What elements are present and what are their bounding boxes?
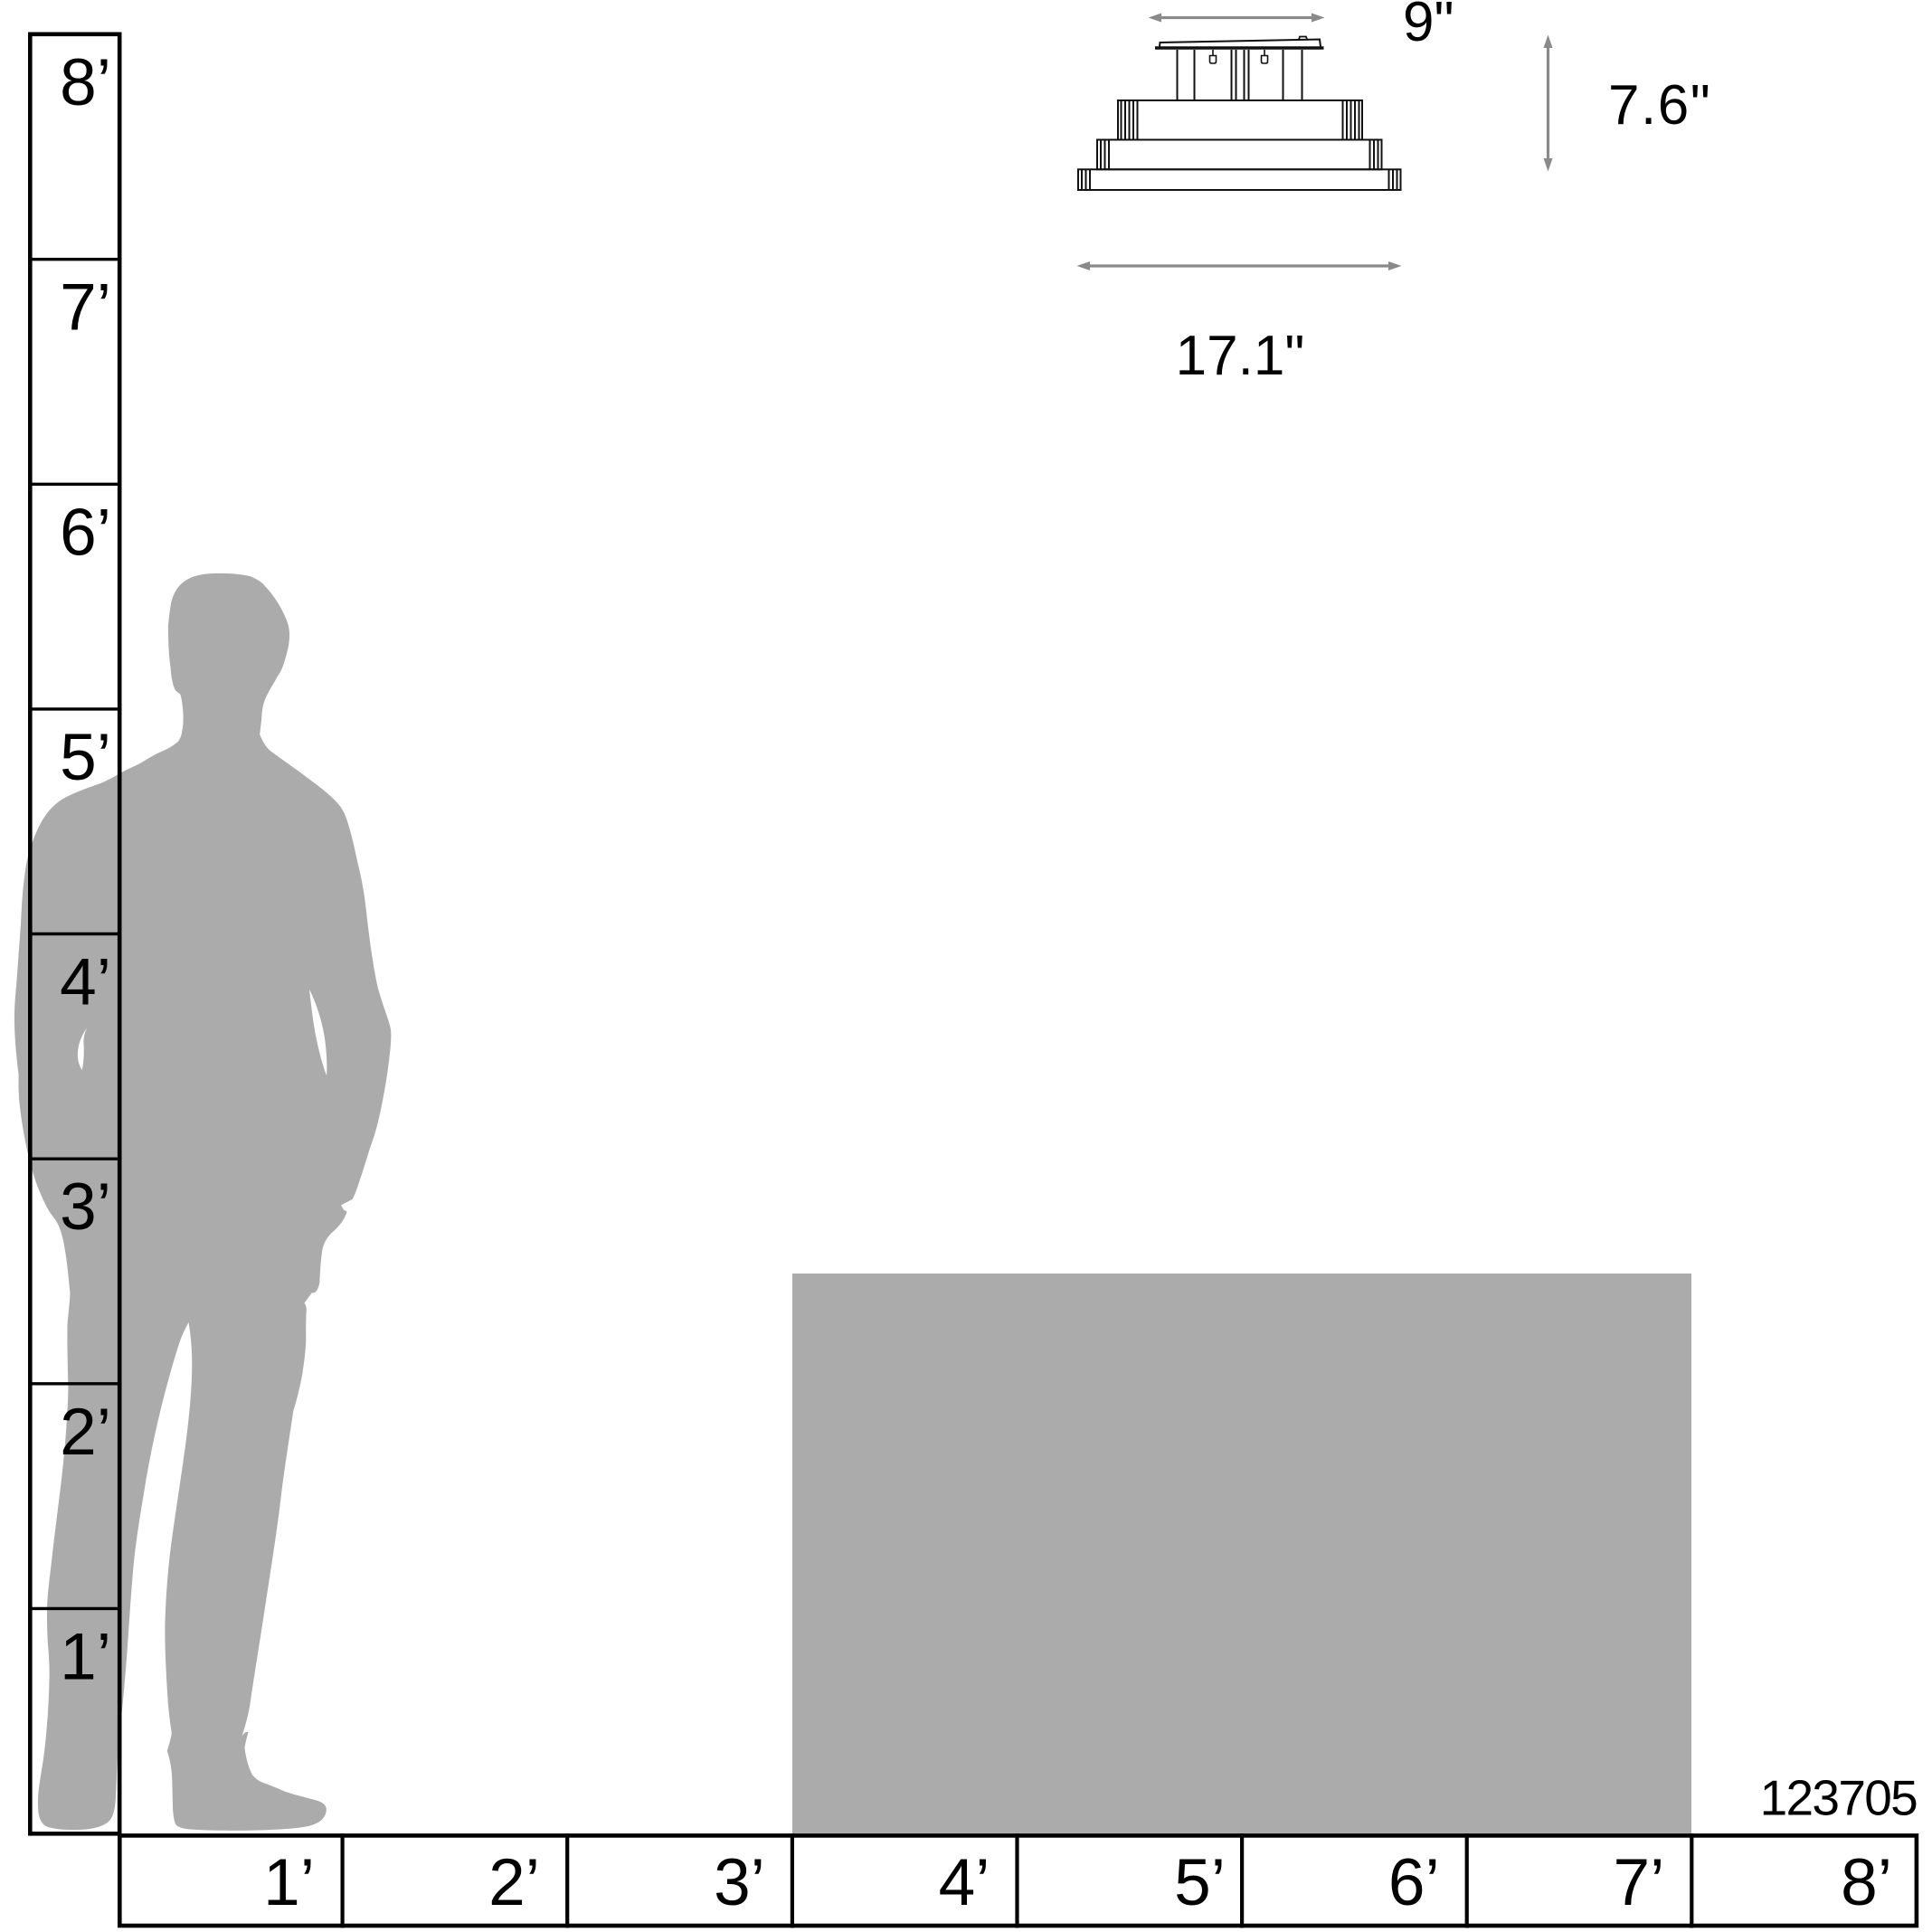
svg-text:7’: 7’ bbox=[1613, 1846, 1664, 1919]
svg-text:1’: 1’ bbox=[263, 1846, 315, 1919]
svg-text:2’: 2’ bbox=[488, 1846, 540, 1919]
svg-text:6’: 6’ bbox=[1388, 1846, 1440, 1919]
svg-text:123705: 123705 bbox=[1760, 1770, 1917, 1826]
svg-text:3’: 3’ bbox=[60, 1170, 111, 1244]
svg-text:5’: 5’ bbox=[60, 721, 111, 794]
svg-text:8’: 8’ bbox=[60, 46, 111, 119]
svg-text:17.1": 17.1" bbox=[1176, 325, 1305, 387]
svg-text:6’: 6’ bbox=[60, 496, 111, 569]
svg-text:7’: 7’ bbox=[60, 271, 111, 345]
svg-text:3’: 3’ bbox=[714, 1846, 765, 1919]
svg-text:4’: 4’ bbox=[939, 1846, 990, 1919]
svg-text:5’: 5’ bbox=[1174, 1846, 1226, 1919]
svg-text:2’: 2’ bbox=[60, 1396, 111, 1469]
svg-text:1’: 1’ bbox=[60, 1620, 111, 1693]
svg-text:4’: 4’ bbox=[60, 946, 111, 1019]
svg-text:8’: 8’ bbox=[1841, 1846, 1892, 1919]
svg-text:7.6": 7.6" bbox=[1608, 74, 1711, 137]
svg-text:9": 9" bbox=[1403, 0, 1454, 53]
